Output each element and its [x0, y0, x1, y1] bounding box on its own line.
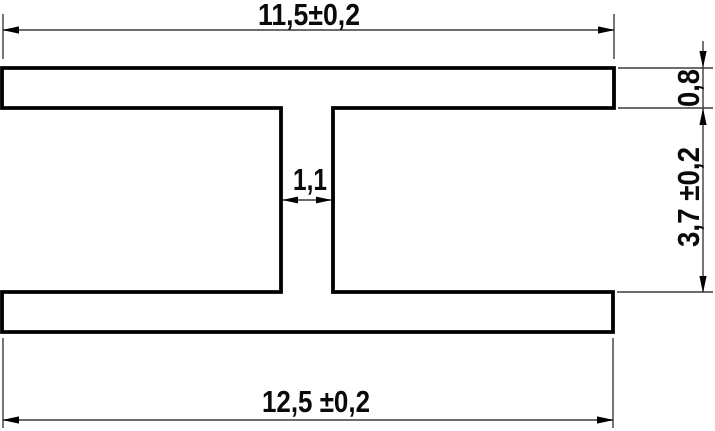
dim-label-side-height: 3,7 ±0,2 — [671, 147, 706, 247]
dim-label-bottom-width: 12,5 ±0,2 — [262, 384, 370, 419]
right-side-dimensions: 0,8 3,7 ±0,2 — [617, 41, 713, 293]
bottom-width-dimension: 12,5 ±0,2 — [2, 338, 614, 428]
dim-label-top-width: 11,5±0,2 — [258, 0, 360, 32]
h-profile-dimension-drawing: 11,5±0,2 12,5 ±0,2 0,8 3,7 ±0,2 — [0, 0, 715, 431]
arrowhead-right-icon — [598, 26, 615, 33]
arrowhead-left-icon — [2, 26, 19, 33]
arrowhead-down-icon — [699, 51, 706, 68]
dim-label-web-thickness: 1,1 — [293, 162, 327, 197]
dim-label-flange-thickness: 0,8 — [671, 69, 706, 107]
arrowhead-up-icon — [699, 108, 706, 125]
arrowhead-down-icon — [699, 276, 706, 293]
arrowhead-left-icon — [2, 416, 19, 423]
top-width-dimension: 11,5±0,2 — [2, 0, 615, 59]
arrowhead-right-icon — [597, 416, 614, 423]
technical-drawing-canvas: 11,5±0,2 12,5 ±0,2 0,8 3,7 ±0,2 — [0, 0, 715, 431]
